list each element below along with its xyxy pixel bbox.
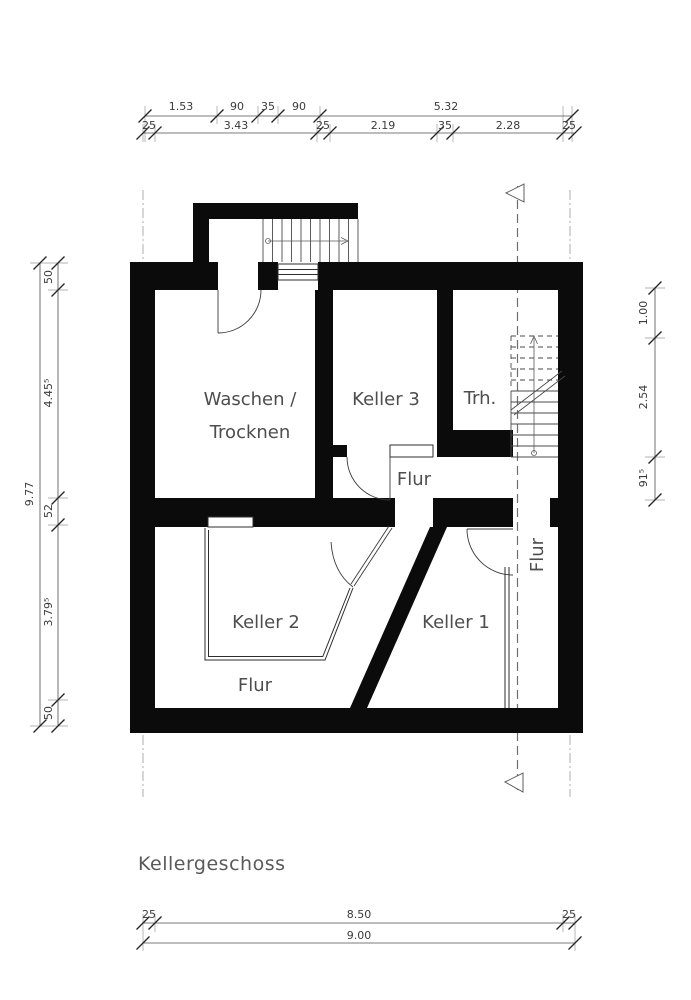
room-label-flur-east: Flur bbox=[527, 537, 548, 572]
room-label-keller2: Keller 2 bbox=[232, 612, 300, 633]
dim-right-0: 1.00 bbox=[637, 301, 650, 326]
wall-right-outer bbox=[558, 262, 583, 733]
keller1-east-wall bbox=[505, 567, 509, 708]
wall-bottom-outer bbox=[130, 708, 583, 733]
dim-top: 1.53 90 35 90 5.32 25 3.43 25 2.19 35 2.… bbox=[137, 100, 582, 142]
middle-wall-right bbox=[433, 498, 513, 527]
dim-top2-0: 25 bbox=[142, 119, 156, 132]
room-label-keller1: Keller 1 bbox=[422, 612, 490, 633]
wall-top-pier bbox=[258, 262, 278, 290]
door-keller1 bbox=[467, 529, 513, 575]
room-label-flur-center: Flur bbox=[397, 469, 432, 490]
dim-left-1: 4.45⁵ bbox=[42, 379, 55, 408]
room-label-waschen-line2: Trocknen bbox=[209, 422, 291, 443]
door-flur-corridor bbox=[331, 526, 392, 587]
wall-top-seg2 bbox=[318, 262, 583, 290]
trh-stair-direction-arrow-icon bbox=[531, 336, 538, 456]
walls bbox=[130, 203, 583, 733]
dim-left-3: 3.79⁵ bbox=[42, 598, 55, 627]
dim-right-2: 91⁵ bbox=[637, 469, 650, 487]
dim-top2-2: 25 bbox=[316, 119, 330, 132]
dim-top1-1: 90 bbox=[230, 100, 244, 113]
door-keller3 bbox=[347, 457, 390, 500]
dim-right-1: 2.54 bbox=[637, 385, 650, 410]
room-label-trh: Trh. bbox=[463, 388, 497, 409]
dim-bottom: 25 8.50 25 9.00 bbox=[137, 908, 582, 951]
drawing-title: Kellergeschoss bbox=[138, 853, 286, 875]
dim-bottom1-1: 8.50 bbox=[347, 908, 372, 921]
wall-top-seg1 bbox=[130, 262, 218, 290]
dim-left-0: 50 bbox=[42, 270, 55, 284]
dim-bottom1-0: 25 bbox=[142, 908, 156, 921]
dim-top1-0: 1.53 bbox=[169, 100, 194, 113]
middle-wall-left bbox=[155, 498, 395, 527]
floor-plan-drawing: Waschen / Trocknen Keller 3 Trh. Flur Ke… bbox=[0, 0, 691, 1000]
trh-south-wall bbox=[437, 430, 513, 457]
dim-top2-6: 25 bbox=[562, 119, 576, 132]
bumpout-left-wall bbox=[193, 203, 209, 262]
trh-staircase bbox=[511, 336, 565, 457]
window-middle-wall bbox=[208, 517, 253, 527]
dim-top2-4: 35 bbox=[438, 119, 452, 132]
floor-plan-page: Waschen / Trocknen Keller 3 Trh. Flur Ke… bbox=[0, 0, 691, 1000]
bumpout-top-wall bbox=[193, 203, 358, 219]
wall-interior-2 bbox=[437, 290, 453, 448]
wall-left-outer bbox=[130, 262, 155, 733]
dim-left: 9.77 50 4.45⁵ 52 3.79⁵ 50 bbox=[23, 257, 68, 733]
room-label-keller3: Keller 3 bbox=[352, 389, 420, 410]
exterior-stair-direction-arrow-icon bbox=[266, 238, 349, 245]
keller2-partition bbox=[205, 528, 353, 660]
dim-top2-3: 2.19 bbox=[371, 119, 396, 132]
dim-left-2: 52 bbox=[42, 504, 55, 518]
exterior-stair bbox=[263, 219, 358, 262]
keller3-south-stub bbox=[333, 445, 347, 457]
dim-top2-5: 2.28 bbox=[496, 119, 521, 132]
dim-top1-4: 5.32 bbox=[434, 100, 459, 113]
dim-left-outer: 9.77 bbox=[23, 482, 36, 507]
dim-right: 1.00 2.54 91⁵ bbox=[637, 282, 665, 507]
dim-bottom2: 9.00 bbox=[347, 929, 372, 942]
dim-bottom1-2: 25 bbox=[562, 908, 576, 921]
dim-top1-2: 35 bbox=[261, 100, 275, 113]
niche-keller3 bbox=[390, 445, 433, 457]
dim-top2-1: 3.43 bbox=[224, 119, 249, 132]
section-marker-bottom-icon bbox=[505, 773, 523, 792]
section-marker-top-icon bbox=[506, 184, 524, 202]
door-waschen bbox=[218, 290, 261, 333]
wall-interior-1 bbox=[315, 290, 333, 498]
window-top-wall bbox=[278, 264, 318, 280]
room-label-flur-southwest: Flur bbox=[238, 675, 273, 696]
dim-top1-3: 90 bbox=[292, 100, 306, 113]
middle-wall-stub bbox=[550, 498, 558, 527]
dim-left-4: 50 bbox=[42, 706, 55, 720]
room-label-waschen-line1: Waschen / bbox=[204, 389, 298, 410]
